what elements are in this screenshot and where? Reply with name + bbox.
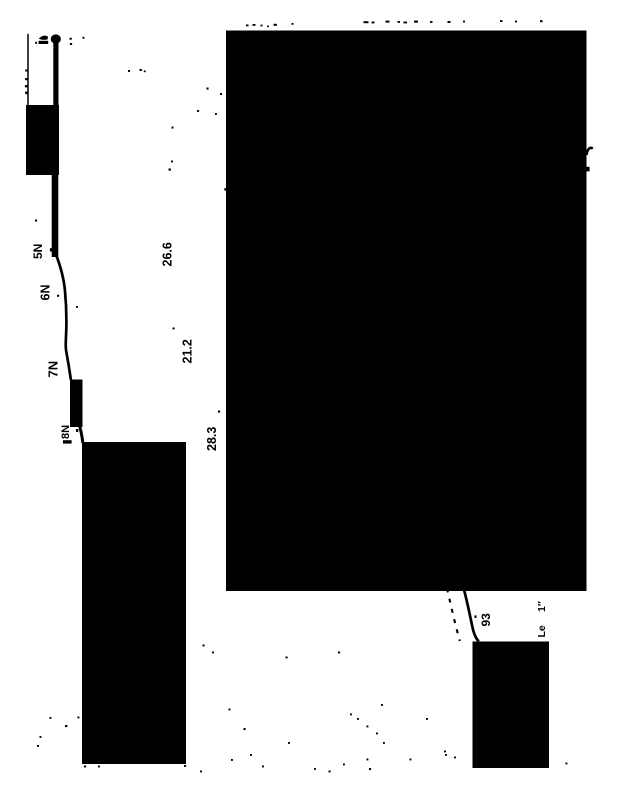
svg-text:93: 93: [479, 613, 493, 627]
svg-text:28.3: 28.3: [205, 427, 219, 451]
svg-text:8N: 8N: [60, 425, 72, 439]
svg-text:1″: 1″: [536, 601, 548, 612]
svg-text:21.2: 21.2: [181, 339, 195, 363]
svg-text:5N: 5N: [31, 244, 45, 259]
svg-text:6N: 6N: [39, 285, 53, 301]
svg-text:7N: 7N: [46, 361, 61, 378]
svg-text:Le: Le: [536, 625, 548, 637]
svg-text:26.6: 26.6: [161, 242, 175, 266]
